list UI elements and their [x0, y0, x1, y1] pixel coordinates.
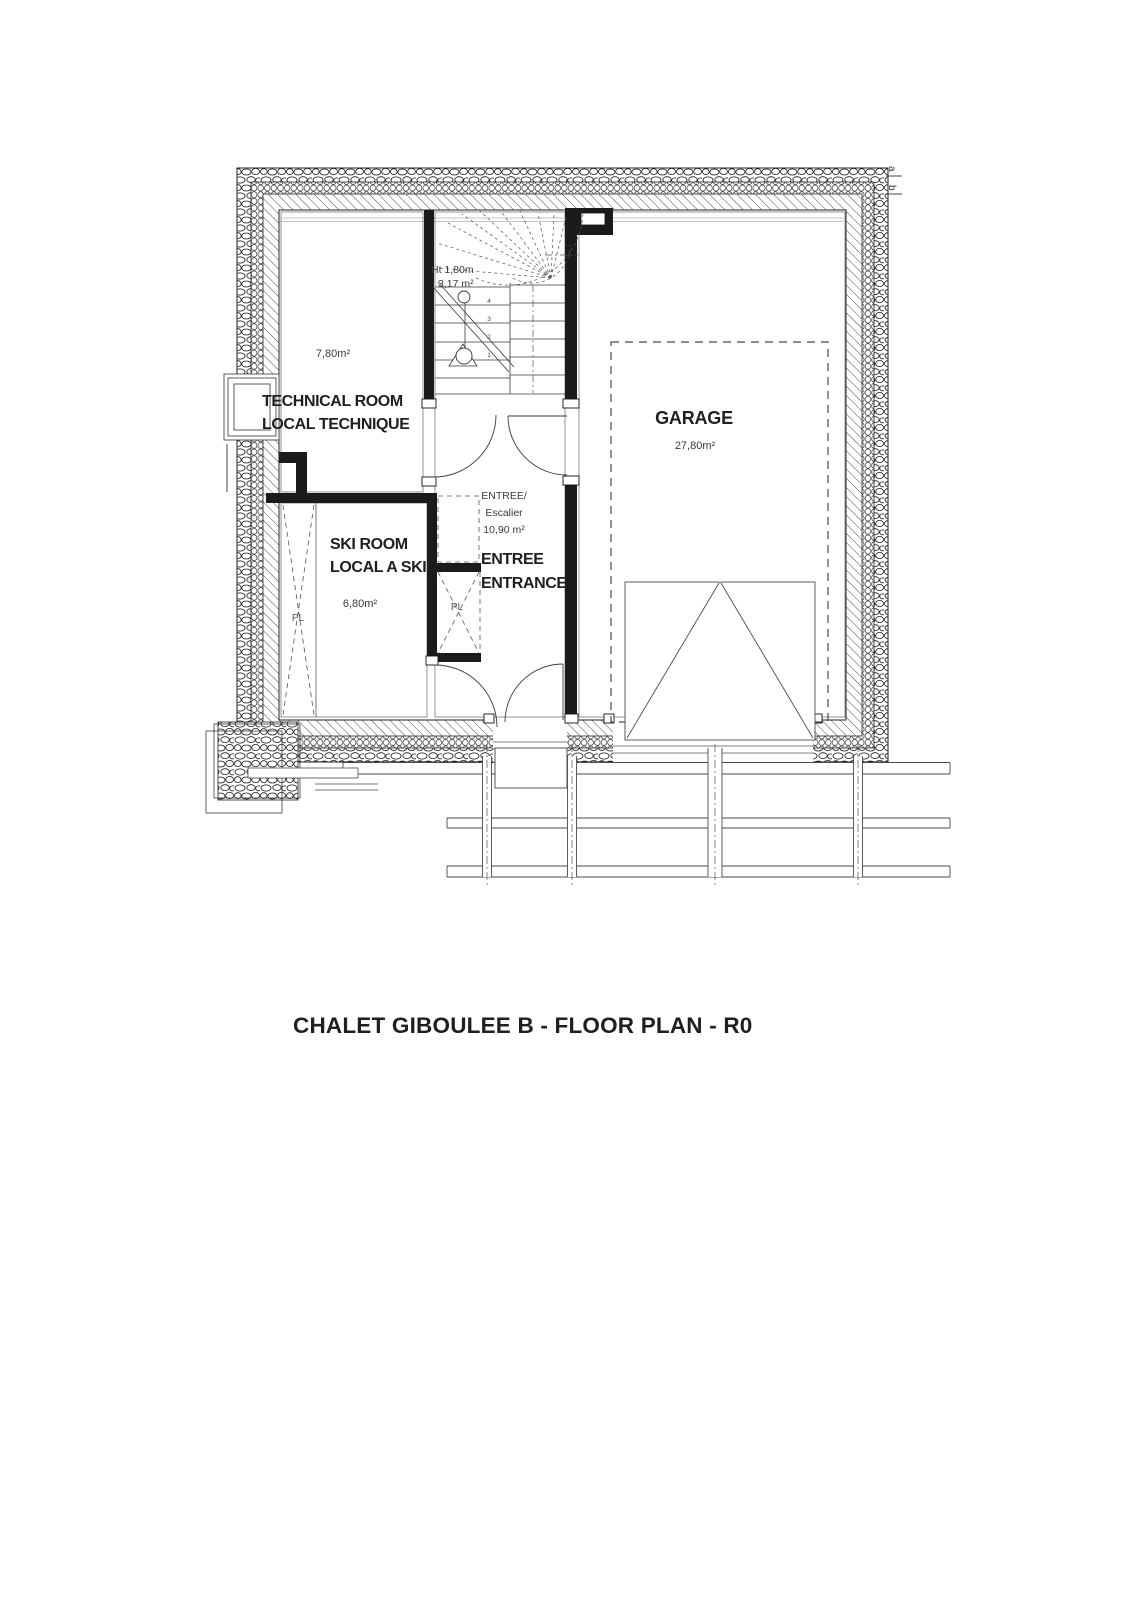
- ski-room-area: 6,80m²: [343, 598, 378, 610]
- garage-fixtures: [611, 342, 828, 740]
- hall-name-fr: ENTREE: [481, 551, 544, 568]
- floor-plan-drawing: 1 2 3 4 Ht 1,80m 3,17 m²: [0, 0, 1130, 980]
- stair-area: 3,17 m²: [438, 278, 474, 290]
- floor-plan-page: 1 2 3 4 Ht 1,80m 3,17 m²: [0, 0, 1130, 1599]
- hall-zone-area: 10,90 m²: [483, 524, 525, 536]
- closet-right-label: PL: [451, 602, 464, 613]
- technical-room-area: 7,80m²: [316, 348, 351, 360]
- room-technical: 7,80m² TECHNICAL ROOM LOCAL TECHNIQUE: [262, 348, 410, 433]
- stair-height-note: Ht 1,80m: [431, 264, 474, 276]
- stair-step-3: 3: [487, 316, 491, 323]
- hall-zone-label-1: ENTREE/: [481, 490, 527, 502]
- front-door-arc: [505, 664, 563, 722]
- garage-name: GARAGE: [655, 408, 733, 428]
- garage-sectional-door: [625, 582, 815, 740]
- room-garage: GARAGE 27,80m²: [655, 408, 733, 452]
- ski-room-name-fr: LOCAL A SKI: [330, 559, 426, 576]
- hall-name-en: ENTRANCE: [481, 575, 567, 592]
- stair-step-1: 1: [487, 352, 491, 359]
- staircase: 1 2 3 4 Ht 1,80m 3,17 m²: [431, 210, 583, 394]
- room-hall: ENTREE/ Escalier 10,90 m² ENTREE ENTRANC…: [481, 490, 567, 592]
- section-mark-b: b: [886, 185, 897, 191]
- stair-step-4: 4: [487, 298, 491, 305]
- entrance-porch-slab: [495, 748, 567, 788]
- hall-zone-label-2: Escalier: [485, 507, 523, 519]
- technical-room-door-arc: [434, 415, 496, 477]
- garage-area: 27,80m²: [675, 440, 716, 452]
- drawing-title: CHALET GIBOULEE B - FLOOR PLAN - R0: [293, 1013, 753, 1039]
- technical-room-name-fr: LOCAL TECHNIQUE: [262, 416, 410, 433]
- ski-room-name-en: SKI ROOM: [330, 536, 408, 553]
- closet-left-label: PL: [292, 613, 305, 624]
- stair-step-2: 2: [487, 334, 491, 341]
- section-mark-a: a: [886, 166, 897, 172]
- room-ski: SKI ROOM LOCAL A SKI 6,80m²: [330, 536, 426, 610]
- garage-interior-door-arc: [508, 416, 567, 475]
- technical-room-name-en: TECHNICAL ROOM: [262, 393, 403, 410]
